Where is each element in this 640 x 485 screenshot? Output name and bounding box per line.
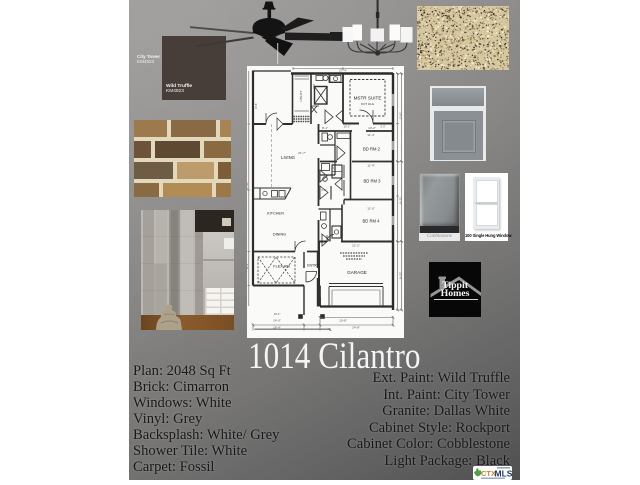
svg-text:MSTR SUITE: MSTR SUITE (354, 96, 382, 101)
svg-text:10'-2": 10'-2" (344, 125, 351, 129)
svg-text:11'-4": 11'-4" (367, 133, 374, 137)
svg-text:21'-2": 21'-2" (352, 243, 360, 247)
svg-text:BD RM 3: BD RM 3 (364, 179, 382, 184)
svg-text:21'-7": 21'-7" (298, 151, 306, 155)
svg-text:24'-8": 24'-8" (352, 326, 360, 330)
svg-text:5'-2": 5'-2" (322, 189, 327, 192)
svg-text:11'-4": 11'-4" (367, 163, 374, 167)
svg-text:5'-6": 5'-6" (313, 83, 316, 88)
svg-text:DINING: DINING (273, 233, 286, 237)
svg-text:9 FT CLG: 9 FT CLG (361, 102, 375, 106)
svg-text:3'-2": 3'-2" (380, 125, 385, 129)
svg-text:12'-2": 12'-2" (247, 263, 249, 270)
svg-text:19'-8": 19'-8" (339, 319, 347, 323)
svg-text:14'-0": 14'-0" (273, 319, 281, 323)
svg-text:GARAGE: GARAGE (347, 270, 367, 275)
svg-text:11'-0": 11'-0" (367, 206, 374, 210)
svg-text:22'-8": 22'-8" (399, 272, 403, 280)
svg-text:13'-2": 13'-2" (368, 126, 376, 130)
svg-text:BD RM 2: BD RM 2 (363, 147, 381, 152)
svg-text:MLS: MLS (495, 469, 513, 479)
svg-text:16'-4": 16'-4" (273, 326, 281, 330)
svg-text:8'-1": 8'-1" (322, 126, 328, 130)
svg-text:10'-4": 10'-4" (274, 312, 281, 316)
svg-text:KITCHEN: KITCHEN (267, 212, 284, 216)
svg-text:14'-6": 14'-6" (254, 103, 258, 110)
svg-text:LIVING: LIVING (281, 155, 295, 160)
svg-text:FLEX RM: FLEX RM (273, 265, 289, 269)
svg-text:36'-10": 36'-10" (247, 182, 249, 191)
svg-text:BD RM 4: BD RM 4 (363, 219, 381, 224)
svg-text:27'-4": 27'-4" (339, 69, 347, 73)
svg-text:21'-6": 21'-6" (399, 197, 403, 205)
svg-text:ENTRY: ENTRY (307, 264, 319, 268)
svg-text:16'-2": 16'-2" (399, 112, 403, 120)
svg-text:UTILITY: UTILITY (299, 90, 303, 101)
svg-text:11'-6": 11'-6" (332, 163, 335, 169)
